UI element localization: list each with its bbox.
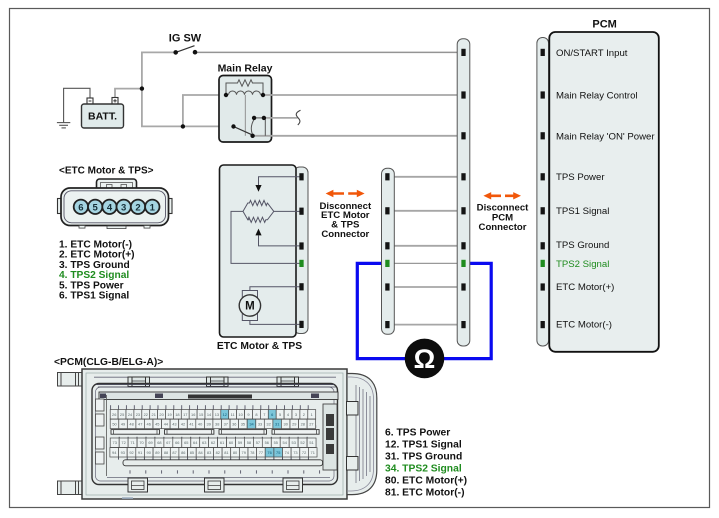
svg-text:55: 55 (274, 440, 278, 445)
svg-text:17: 17 (183, 412, 187, 417)
svg-text:Main Relay 'ON' Power: Main Relay 'ON' Power (556, 131, 655, 142)
svg-text:2. ETC Motor(+): 2. ETC Motor(+) (59, 250, 135, 261)
svg-text:63: 63 (202, 440, 206, 445)
svg-text:56: 56 (265, 440, 269, 445)
svg-text:Connector: Connector (321, 229, 369, 240)
svg-text:91: 91 (138, 450, 142, 455)
svg-text:38: 38 (215, 421, 219, 426)
svg-text:ETC Motor(-): ETC Motor(-) (556, 319, 612, 330)
svg-text:4: 4 (107, 202, 113, 213)
svg-text:7: 7 (263, 412, 265, 417)
svg-text:31. TPS Ground: 31. TPS Ground (385, 451, 462, 462)
svg-text:72: 72 (121, 440, 125, 445)
svg-text:27: 27 (309, 421, 313, 426)
svg-text:61: 61 (220, 440, 224, 445)
svg-text:92: 92 (129, 450, 133, 455)
svg-text:87: 87 (172, 450, 176, 455)
svg-text:76: 76 (267, 450, 271, 455)
svg-text:26: 26 (112, 412, 116, 417)
svg-text:49: 49 (121, 421, 125, 426)
svg-text:19: 19 (167, 412, 171, 417)
svg-text:Disconnect: Disconnect (477, 202, 530, 213)
svg-text:81: 81 (224, 450, 228, 455)
svg-text:79: 79 (242, 450, 246, 455)
svg-text:5: 5 (93, 202, 99, 213)
svg-text:13: 13 (215, 412, 219, 417)
svg-text:72: 72 (302, 450, 306, 455)
svg-text:58: 58 (247, 440, 251, 445)
svg-text:51: 51 (309, 440, 313, 445)
svg-text:1: 1 (311, 412, 313, 417)
svg-text:47: 47 (138, 421, 142, 426)
svg-text:8: 8 (255, 412, 257, 417)
svg-text:73: 73 (113, 440, 117, 445)
svg-text:15: 15 (199, 412, 203, 417)
svg-text:BATT.: BATT. (88, 110, 117, 122)
svg-text:PCM: PCM (592, 19, 616, 31)
svg-text:3: 3 (121, 202, 126, 213)
svg-text:82: 82 (216, 450, 220, 455)
svg-text:71: 71 (311, 450, 315, 455)
svg-text:81. ETC Motor(-): 81. ETC Motor(-) (385, 487, 465, 498)
svg-text:25: 25 (120, 412, 124, 417)
svg-text:80. ETC Motor(+): 80. ETC Motor(+) (385, 475, 467, 486)
svg-text:TPS Ground: TPS Ground (556, 240, 609, 251)
svg-text:41: 41 (189, 421, 193, 426)
svg-text:ETC Motor & TPS: ETC Motor & TPS (217, 341, 302, 352)
svg-text:69: 69 (148, 440, 152, 445)
svg-text:<PCM(CLG-B/ELG-A)>: <PCM(CLG-B/ELG-A)> (54, 357, 163, 368)
svg-text:62: 62 (211, 440, 215, 445)
svg-text:1: 1 (150, 202, 156, 213)
svg-text:23: 23 (136, 412, 140, 417)
svg-text:73: 73 (293, 450, 297, 455)
svg-text:42: 42 (181, 421, 185, 426)
svg-text:33: 33 (258, 421, 262, 426)
svg-text:5: 5 (279, 412, 281, 417)
svg-text:86: 86 (181, 450, 185, 455)
svg-text:29: 29 (292, 421, 296, 426)
svg-text:66: 66 (175, 440, 179, 445)
svg-text:2: 2 (303, 412, 305, 417)
svg-text:6. TPS1 Signal: 6. TPS1 Signal (59, 291, 129, 302)
svg-text:ON/START Input: ON/START Input (556, 48, 628, 59)
svg-text:IG SW: IG SW (169, 33, 202, 45)
svg-text:3: 3 (295, 412, 297, 417)
svg-text:39: 39 (207, 421, 211, 426)
svg-text:TPS2 Signal: TPS2 Signal (556, 259, 609, 270)
svg-text:53: 53 (292, 440, 296, 445)
svg-text:57: 57 (256, 440, 260, 445)
svg-text:68: 68 (157, 440, 161, 445)
svg-text:21: 21 (152, 412, 156, 417)
svg-text:31: 31 (275, 421, 279, 426)
svg-text:M: M (245, 301, 255, 313)
svg-text:37: 37 (224, 421, 228, 426)
svg-text:ETC Motor(+): ETC Motor(+) (556, 282, 614, 293)
svg-text:Main Relay: Main Relay (218, 63, 273, 75)
svg-text:48: 48 (129, 421, 133, 426)
svg-text:18: 18 (175, 412, 179, 417)
svg-text:77: 77 (259, 450, 263, 455)
svg-text:11: 11 (231, 412, 235, 417)
svg-text:12: 12 (223, 412, 227, 417)
svg-text:Ω: Ω (414, 344, 436, 374)
svg-text:Connector: Connector (479, 222, 527, 233)
svg-text:6. TPS Power: 6. TPS Power (385, 427, 450, 438)
svg-text:28: 28 (301, 421, 305, 426)
svg-text:6: 6 (78, 202, 83, 213)
svg-text:45: 45 (155, 421, 159, 426)
svg-text:71: 71 (130, 440, 134, 445)
svg-text:2: 2 (135, 202, 140, 213)
svg-text:22: 22 (144, 412, 148, 417)
svg-text:52: 52 (300, 440, 304, 445)
svg-text:78: 78 (250, 450, 254, 455)
svg-text:43: 43 (172, 421, 176, 426)
svg-text:12. TPS1 Signal: 12. TPS1 Signal (385, 439, 462, 450)
svg-text:88: 88 (164, 450, 168, 455)
svg-text:59: 59 (238, 440, 242, 445)
svg-text:67: 67 (166, 440, 170, 445)
svg-text:93: 93 (121, 450, 125, 455)
svg-text:<ETC Motor & TPS>: <ETC Motor & TPS> (59, 166, 154, 177)
svg-text:89: 89 (155, 450, 159, 455)
svg-text:TPS Power: TPS Power (556, 172, 605, 183)
svg-text:85: 85 (190, 450, 194, 455)
svg-text:TPS1 Signal: TPS1 Signal (556, 206, 609, 217)
svg-text:16: 16 (191, 412, 195, 417)
svg-text:34. TPS2 Signal: 34. TPS2 Signal (385, 463, 462, 474)
svg-text:35: 35 (241, 421, 245, 426)
svg-text:Main Relay Control: Main Relay Control (556, 90, 638, 101)
svg-text:83: 83 (207, 450, 211, 455)
svg-text:65: 65 (184, 440, 188, 445)
svg-text:75: 75 (276, 450, 280, 455)
svg-text:9: 9 (247, 412, 249, 417)
svg-text:32: 32 (266, 421, 270, 426)
svg-text:46: 46 (147, 421, 151, 426)
svg-text:36: 36 (232, 421, 236, 426)
svg-text:6: 6 (271, 412, 273, 417)
